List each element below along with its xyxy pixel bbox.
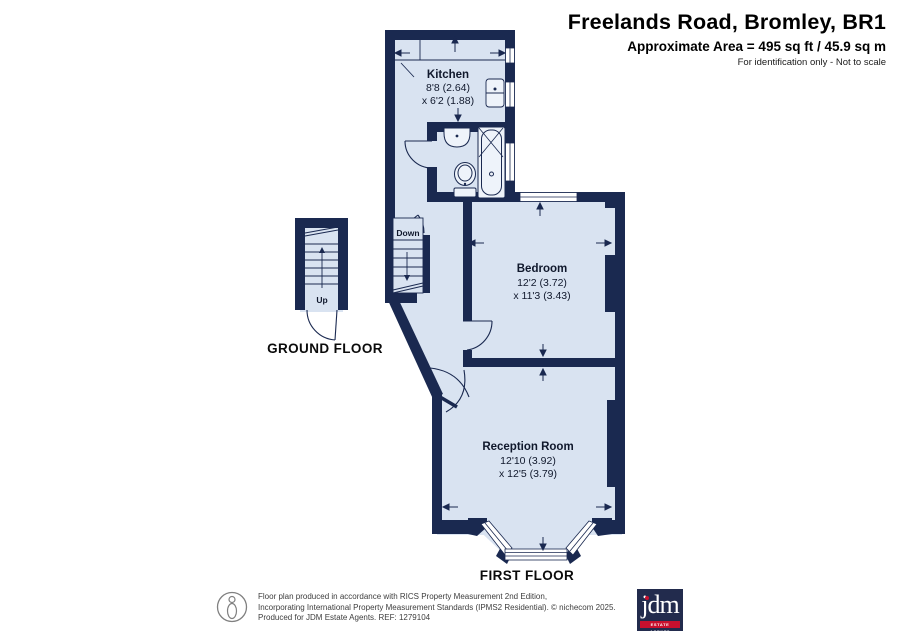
kitchen-dim2: x 6'2 (1.88) <box>422 95 474 107</box>
disclaimer-text: Floor plan produced in accordance with R… <box>258 590 616 624</box>
reception-label: Reception Room <box>482 441 573 453</box>
disclaimer-line-2: Incorporating International Property Mea… <box>258 603 616 614</box>
basin-icon <box>444 128 470 147</box>
toilet-icon <box>454 163 476 198</box>
bedroom-label: Bedroom <box>517 263 567 275</box>
stairs-up-label: Up <box>316 295 327 305</box>
bathroom-window-icon <box>506 143 515 181</box>
bathtub-icon <box>478 127 505 198</box>
kitchen-label: Kitchen <box>427 69 469 81</box>
disclaimer-line-3: Produced for JDM Estate Agents. REF: 127… <box>258 613 616 624</box>
disclaimer-line-1: Floor plan produced in accordance with R… <box>258 592 616 603</box>
kitchen-window-upper-icon <box>506 48 515 63</box>
bedroom-window-icon <box>520 193 577 202</box>
reception-dim1: 12'10 (3.92) <box>500 455 556 467</box>
kitchen-window-lower-icon <box>506 82 515 107</box>
bedroom-dim2: x 11'3 (3.43) <box>513 290 570 302</box>
ground-floor-door-arc <box>307 310 337 340</box>
ground-floor-label: GROUND FLOOR <box>267 341 383 356</box>
jdm-logo-text: jdm <box>637 592 683 618</box>
floorplan-page: Freelands Road, Bromley, BR1 Approximate… <box>0 0 900 636</box>
reception-dim2: x 12'5 (3.79) <box>499 468 557 480</box>
stairs-down-label: Down <box>396 228 419 238</box>
floor-fills <box>300 33 622 560</box>
nichecom-person-icon <box>215 590 249 624</box>
jdm-logo-tagline: ESTATE AGENTS <box>640 621 680 628</box>
kitchen-dim1: 8'8 (2.64) <box>426 82 470 94</box>
footer: Floor plan produced in accordance with R… <box>215 590 616 624</box>
bedroom-dim1: 12'2 (3.72) <box>517 277 567 289</box>
kitchen-sink-icon <box>486 79 504 107</box>
floor-plan-drawing: Kitchen 8'8 (2.64) x 6'2 (1.88) Bedroom … <box>0 0 900 636</box>
first-floor-label: FIRST FLOOR <box>480 568 574 583</box>
jdm-logo-red-dot <box>645 596 649 600</box>
jdm-estate-agents-logo: jdm ESTATE AGENTS <box>637 589 683 631</box>
